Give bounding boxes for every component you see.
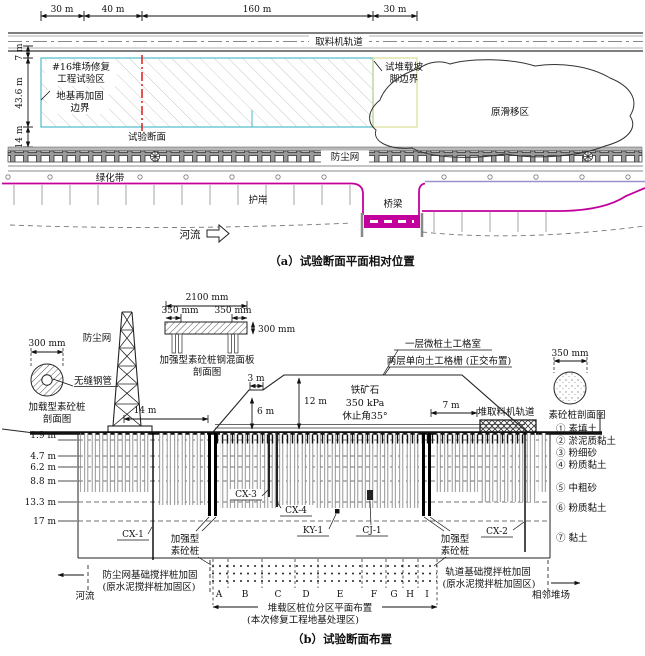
- zone-a: A: [215, 590, 223, 600]
- plain-pile-title: 素砼桩剖面图: [548, 409, 605, 421]
- adjacent-yard-label: 相邻堆场: [532, 589, 570, 601]
- depth-6: 17 m: [33, 517, 56, 527]
- soil-layer-7: ⑦ 黏土: [556, 532, 588, 544]
- steel-pipe-label: 无缝钢管: [74, 375, 112, 387]
- test-zone-label-1: #16堆场修复: [52, 61, 111, 73]
- strong-pile-right-2: 素砼桩: [441, 545, 470, 557]
- panel-dim-right: 350 mm: [214, 306, 252, 316]
- strong-pile-label-right: 加强型 素砼桩: [424, 517, 475, 566]
- dim-14m-a: 14 m: [15, 125, 25, 148]
- revetment-line-right: [422, 188, 645, 211]
- figure-a-caption: （a）试验断面平面相对位置: [269, 254, 415, 268]
- cx1-label: CX-1: [122, 530, 144, 540]
- stacker-track-label: 堆取料机轨道: [477, 406, 535, 418]
- track-foundation-note-1: 轨道基础搅拌桩加固: [445, 566, 531, 578]
- dim-14m-b: 14 m: [134, 406, 157, 416]
- pile-zone-edge: [538, 433, 549, 492]
- ore-label-1: 铁矿石: [351, 384, 380, 396]
- panel-slab: [165, 322, 247, 334]
- slope-toe-label-1: 试堆载坡: [385, 61, 424, 73]
- dust-net-symbol-right: [583, 152, 592, 161]
- dust-net-symbol-left: [150, 152, 159, 161]
- reclaimer-track-band: 取料机轨道: [8, 33, 643, 51]
- dim-43-6m: 43.6 m: [15, 77, 25, 109]
- zone-d: D: [302, 590, 309, 600]
- pile-plan-note-1: 堆载区桩位分区平面布置: [268, 602, 373, 614]
- panel-dim-left: 350 mm: [161, 306, 199, 316]
- revetment-hatch-right: [422, 212, 563, 232]
- plain-pile-detail: 350 mm 素砼桩剖面图: [548, 349, 605, 421]
- ky1-label: KY-1: [303, 526, 323, 536]
- zone-e: E: [337, 590, 344, 600]
- dust-net-band: 防尘网: [8, 147, 642, 163]
- cx2-label: CX-2: [486, 527, 508, 537]
- bridge-label: 桥梁: [383, 198, 403, 210]
- surface-approach: [2, 429, 30, 433]
- strong-pile-left-1: 加强型: [171, 534, 200, 545]
- river-label-a: 河流: [180, 228, 201, 241]
- slope-toe-label-2: 脚边界: [390, 74, 419, 85]
- loading-pile-title-2: 剖面图: [43, 413, 72, 425]
- dim-7m: 7 m: [442, 401, 460, 411]
- cj1-sensor: [367, 490, 373, 500]
- test-section-diagram: 30 m 40 m 160 m 30 m 取料机轨道 7 m 43.6 m 14…: [0, 0, 645, 656]
- green-belt-label: 绿化带: [96, 172, 125, 184]
- dim-30m-right: 30 m: [384, 5, 407, 15]
- bottom-right-note: 轨道基础搅拌桩加固 (原水泥搅拌桩加固区) 相邻堆场: [443, 560, 580, 601]
- panel-piles: [172, 334, 238, 353]
- pile-plan-note-2: (本次修复工程地基处理区): [247, 614, 359, 626]
- top-dimension-chain: [41, 11, 417, 21]
- strong-pile-right-1: 加强型: [441, 534, 470, 545]
- depth-2: 4.7 m: [30, 452, 56, 462]
- reinforce-boundary-label-2: 边界: [70, 103, 90, 114]
- depth-3: 6.2 m: [30, 463, 56, 473]
- reinforce-boundary-label-1: 地基再加固: [56, 90, 104, 102]
- track-foundation-note-2: (原水泥搅拌桩加固区): [443, 578, 536, 590]
- pile-plan-strip: A B C D E F G H I 堆载区桩位分区平面布置 (本次修复工程地基处…: [211, 559, 437, 626]
- river-label-b: 河流: [75, 590, 95, 602]
- panel-title-1: 加强型素砼桩钢混面板: [159, 354, 255, 366]
- revetment-label: 护岸: [248, 194, 268, 206]
- dim-6m: 6 m: [257, 407, 275, 417]
- geogrid-label: 两层单向土工格栅 (正交布置): [387, 355, 511, 367]
- test-zone-label-2: 工程试验区: [57, 73, 105, 85]
- plain-pile-dim: 350 mm: [551, 349, 589, 359]
- depth-1: 1.9 m: [30, 431, 56, 441]
- panel-title-2: 剖面图: [193, 366, 222, 378]
- soil-layer-2: ② 淤泥质黏土: [556, 435, 617, 447]
- dim-160m: 160 m: [243, 5, 272, 15]
- figure-b-cross-section: 300 mm 无缝钢管 加载型素砼桩 剖面图 防尘网 2100 mm 350 m…: [2, 293, 617, 646]
- dust-net-label-a: 防尘网: [331, 151, 360, 163]
- loading-pile-detail: 300 mm 无缝钢管 加载型素砼桩 剖面图: [28, 339, 118, 425]
- cj1-label: CJ-1: [362, 526, 381, 536]
- soil-layer-3: ③ 粉细砂: [556, 447, 598, 459]
- ky1-sensor: [335, 509, 340, 514]
- dust-net-label-b: 防尘网: [83, 332, 112, 344]
- panel-dim-total: 2100 mm: [186, 293, 229, 303]
- soil-layer-4: ④ 粉质黏土: [556, 459, 607, 471]
- ore-label-3: 休止角35°: [342, 410, 387, 422]
- soil-layer-6: ⑥ 粉质黏土: [556, 502, 607, 514]
- depth-5: 13.3 m: [25, 498, 57, 508]
- dim-bench-3m: 3 m: [247, 374, 265, 384]
- zone-h: H: [406, 590, 414, 600]
- loading-pile-title-1: 加载型素砼桩: [28, 401, 86, 413]
- loading-pile-dim: 300 mm: [28, 339, 66, 349]
- depth-ticks: [58, 440, 77, 521]
- cx3-label: CX-3: [235, 490, 257, 500]
- zone-i: I: [425, 590, 429, 600]
- figure-a-plan-view: 30 m 40 m 160 m 30 m 取料机轨道 7 m 43.6 m 14…: [0, 5, 645, 268]
- reclaimer-track-label: 取料机轨道: [315, 36, 363, 48]
- bridge: [362, 213, 422, 237]
- strong-pile-left-2: 素砼桩: [171, 545, 200, 557]
- depth-4: 8.8 m: [30, 477, 56, 487]
- ore-label-2: 350 kPa: [346, 398, 385, 409]
- dustnet-foundation-note-1: 防尘网基础搅拌桩加固: [102, 569, 197, 581]
- steel-pipe-circle: [42, 375, 52, 385]
- zone-g: G: [390, 590, 397, 600]
- dim-40m: 40 m: [102, 5, 125, 15]
- dustnet-foundation-note-2: (原水泥搅拌桩加固区): [103, 581, 196, 593]
- slope-toe-leader: [374, 61, 382, 71]
- pile-zone-left: [157, 433, 207, 505]
- dim-12m: 12 m: [304, 397, 327, 407]
- tower-footing: [108, 426, 152, 432]
- pile-zone-dustnet: [80, 433, 150, 492]
- bottom-left-note: 防尘网基础搅拌桩加固 (原水泥搅拌桩加固区) 河流: [58, 560, 210, 602]
- soil-layer-1: ① 素填土: [556, 423, 598, 435]
- cx4-label: CX-4: [285, 506, 307, 516]
- pile-zones: [80, 433, 549, 508]
- panel-dim-thickness: 300 mm: [258, 325, 296, 335]
- panel-detail: 2100 mm 350 mm 350 mm 300 mm 加强型素砼桩钢混面板 …: [159, 293, 295, 378]
- slip-zone-label: 原滑移区: [491, 106, 530, 118]
- diagram-page: 30 m 40 m 160 m 30 m 取料机轨道 7 m 43.6 m 14…: [0, 0, 645, 656]
- micropile-comb: [214, 435, 526, 444]
- shore-dashed-left: [10, 223, 352, 228]
- plain-pile-section-circle: [554, 372, 586, 404]
- track-foundation-block: [480, 420, 536, 433]
- soil-layer-5: ⑤ 中粗砂: [556, 482, 598, 494]
- revetment-hatch-left: [0, 185, 352, 205]
- soil-layer-legend: ① 素填土 ② 淤泥质黏土 ③ 粉细砂 ④ 粉质黏土 ⑤ 中粗砂 ⑥ 粉质黏土 …: [556, 423, 617, 544]
- test-section-label: 试验断面: [128, 131, 166, 143]
- dim-30m-left: 30 m: [51, 5, 74, 15]
- zone-c: C: [275, 590, 282, 600]
- figure-b-caption: （b）试验断面布置: [292, 632, 393, 646]
- dim-7m: 7 m: [15, 43, 25, 61]
- zone-f: F: [371, 590, 377, 600]
- zone-b: B: [242, 590, 249, 600]
- geocell-label: 一层微桩土工格室: [405, 338, 481, 350]
